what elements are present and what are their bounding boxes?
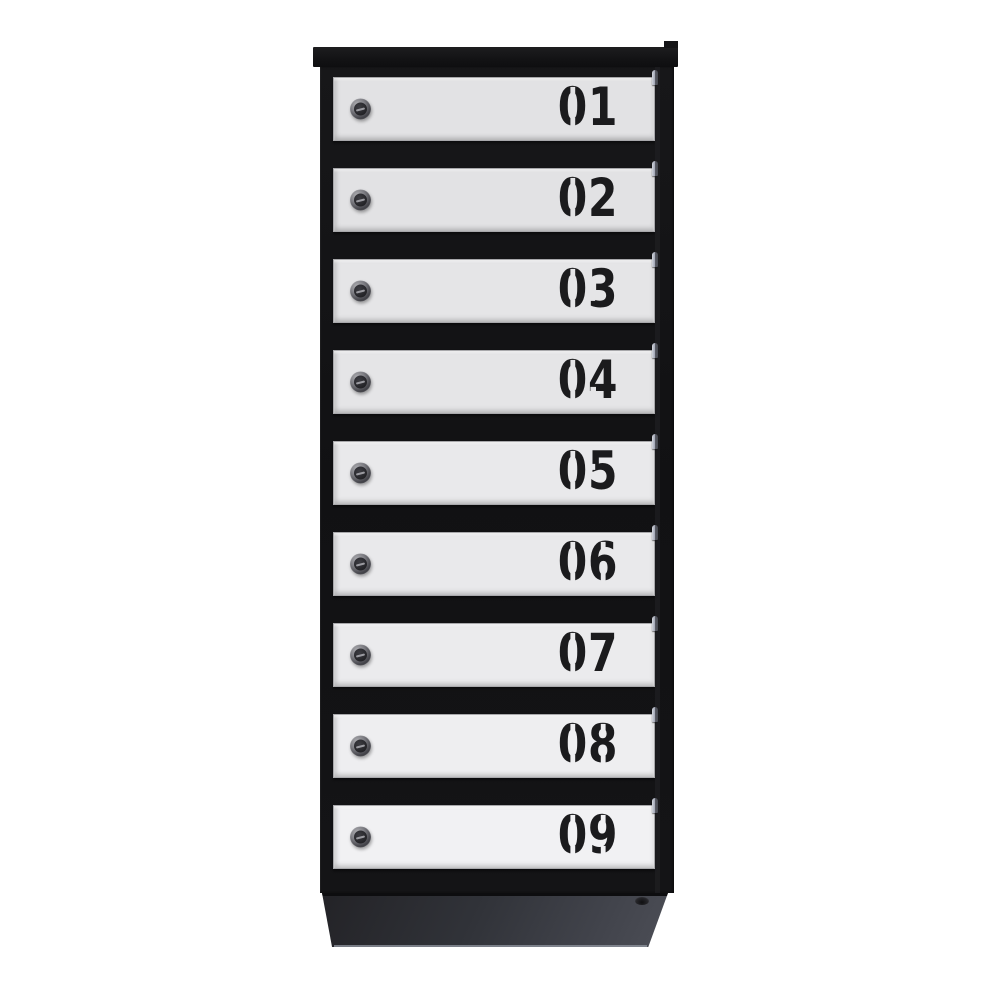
stencil-digit-0: 0	[558, 809, 588, 862]
lock-icon	[350, 736, 371, 757]
cabinet-body-frame: 01 02 03 04 05 06 07	[320, 67, 674, 893]
door-number-label: 09	[546, 809, 629, 862]
stencil-digit-0: 0	[558, 718, 588, 771]
lock-icon	[350, 372, 371, 393]
stencil-digit-2: 2	[588, 172, 618, 225]
stencil-digit-0: 0	[558, 536, 588, 589]
stencil-digit-1: 1	[588, 81, 618, 134]
stencil-digit-0: 0	[558, 263, 588, 316]
mailbox-door-08: 08	[333, 714, 655, 778]
door-number-label: 06	[546, 536, 629, 589]
lock-icon	[350, 554, 371, 575]
hinge-pin-icon	[652, 707, 658, 722]
door-number-label: 03	[546, 263, 629, 316]
stencil-digit-0: 0	[558, 354, 588, 407]
keyhole-icon	[354, 558, 367, 571]
hinge-pin-icon	[652, 434, 658, 449]
stencil-digit-8: 8	[588, 718, 618, 771]
cabinet-base-plinth	[322, 893, 668, 947]
stencil-digit-3: 3	[588, 263, 618, 316]
stencil-digit-0: 0	[558, 81, 588, 134]
keyhole-icon	[354, 376, 367, 389]
mailbox-door-02: 02	[333, 168, 655, 232]
door-number-label: 02	[546, 172, 629, 225]
lock-icon	[350, 463, 371, 484]
hinge-pin-icon	[652, 252, 658, 267]
hinge-pin-icon	[652, 798, 658, 813]
cabinet-top-cap-tab	[664, 41, 678, 48]
mailbox-product-photo: 01 02 03 04 05 06 07	[0, 0, 1000, 1000]
door-number-label: 07	[546, 627, 629, 680]
door-number-label: 01	[546, 81, 629, 134]
stencil-digit-5: 5	[588, 445, 618, 498]
stencil-digit-4: 4	[588, 354, 618, 407]
stencil-digit-0: 0	[558, 627, 588, 680]
keyhole-icon	[354, 831, 367, 844]
keyhole-icon	[354, 649, 367, 662]
hinge-pin-icon	[652, 525, 658, 540]
stencil-digit-6: 6	[588, 536, 618, 589]
keyhole-icon	[354, 194, 367, 207]
door-number-label: 05	[546, 445, 629, 498]
lock-icon	[350, 190, 371, 211]
keyhole-icon	[354, 467, 367, 480]
lock-icon	[350, 645, 371, 666]
stencil-digit-9: 9	[588, 809, 618, 862]
door-number-label: 04	[546, 354, 629, 407]
rivet-icon	[635, 897, 649, 905]
door-column: 01 02 03 04 05 06 07	[333, 77, 655, 869]
stencil-digit-0: 0	[558, 445, 588, 498]
mailbox-door-04: 04	[333, 350, 655, 414]
mailbox-door-06: 06	[333, 532, 655, 596]
door-number-label: 08	[546, 718, 629, 771]
lock-icon	[350, 281, 371, 302]
stencil-digit-7: 7	[588, 627, 618, 680]
mailbox-door-09: 09	[333, 805, 655, 869]
hinge-pin-icon	[652, 70, 658, 85]
mailbox-door-05: 05	[333, 441, 655, 505]
keyhole-icon	[354, 740, 367, 753]
mailbox-door-03: 03	[333, 259, 655, 323]
lock-icon	[350, 827, 371, 848]
cabinet-top-cap	[313, 47, 678, 67]
hinge-pin-icon	[652, 616, 658, 631]
keyhole-icon	[354, 285, 367, 298]
hinge-pin-icon	[652, 161, 658, 176]
hinge-pin-icon	[652, 343, 658, 358]
stencil-digit-0: 0	[558, 172, 588, 225]
lock-icon	[350, 99, 371, 120]
keyhole-icon	[354, 103, 367, 116]
mailbox-door-01: 01	[333, 77, 655, 141]
mailbox-door-07: 07	[333, 623, 655, 687]
